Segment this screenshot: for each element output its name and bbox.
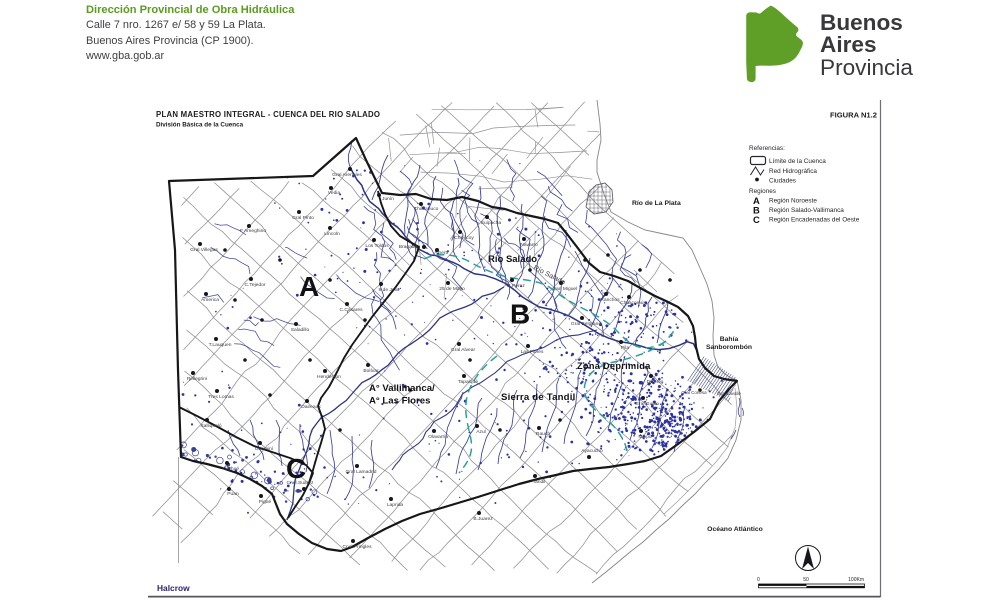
svg-text:B.Juarez: B.Juarez bbox=[473, 516, 493, 522]
svg-text:Guaminí: Guaminí bbox=[255, 446, 274, 452]
svg-text:Gral Conesa: Gral Conesa bbox=[681, 390, 707, 395]
svg-text:Bragado: Bragado bbox=[399, 244, 418, 250]
svg-text:Gral Arenales: Gral Arenales bbox=[332, 172, 362, 178]
svg-text:R.Perez: R.Perez bbox=[507, 283, 525, 289]
svg-text:Chacabuco: Chacabuco bbox=[414, 206, 439, 212]
svg-text:Daireaux: Daireaux bbox=[301, 404, 321, 410]
svg-text:Regiones: Regiones bbox=[749, 188, 776, 195]
svg-text:Junín: Junín bbox=[382, 196, 394, 202]
svg-text:PLAN MAESTRO INTEGRAL - CUENCA: PLAN MAESTRO INTEGRAL - CUENCA DEL RIO S… bbox=[156, 110, 380, 119]
svg-text:C.Casares: C.Casares bbox=[339, 307, 363, 313]
svg-text:America: America bbox=[201, 297, 219, 303]
svg-text:Chivilcoy: Chivilcoy bbox=[454, 235, 474, 241]
svg-text:A: A bbox=[299, 271, 319, 302]
svg-text:9 de Julio: 9 de Julio bbox=[379, 287, 400, 293]
svg-text:A° Las Flores: A° Las Flores bbox=[369, 396, 430, 407]
svg-text:Pigüé: Pigüé bbox=[259, 499, 272, 505]
svg-text:Pila: Pila bbox=[621, 345, 629, 351]
svg-text:Zona Deprimida: Zona Deprimida bbox=[577, 361, 651, 371]
svg-text:Las Flores: Las Flores bbox=[521, 349, 544, 355]
svg-text:FIGURA N1.2: FIGURA N1.2 bbox=[830, 111, 877, 120]
svg-text:Tres Lomas: Tres Lomas bbox=[208, 394, 234, 400]
svg-text:Sanborombón: Sanborombón bbox=[706, 344, 752, 351]
svg-text:Red Hidrográfica: Red Hidrográfica bbox=[769, 168, 817, 175]
svg-text:Halcrow: Halcrow bbox=[157, 583, 190, 593]
svg-text:Tandil: Tandil bbox=[533, 479, 546, 485]
svg-text:Tapalqué: Tapalqué bbox=[458, 379, 478, 385]
svg-text:Sierra de Tandil: Sierra de Tandil bbox=[501, 392, 575, 403]
svg-text:Dolores: Dolores bbox=[647, 379, 664, 385]
svg-text:Carhué: Carhué bbox=[223, 466, 239, 472]
svg-text:Henderson: Henderson bbox=[317, 374, 341, 380]
svg-text:C.Tejedor: C.Tejedor bbox=[245, 282, 266, 288]
svg-text:Saladillo: Saladillo bbox=[291, 327, 310, 333]
svg-text:Océano Atlántico: Océano Atlántico bbox=[707, 526, 763, 533]
svg-text:100Km: 100Km bbox=[848, 577, 864, 583]
svg-text:Puan: Puan bbox=[227, 491, 239, 497]
svg-text:F Ameghino: F Ameghino bbox=[240, 228, 266, 234]
svg-text:Maipú: Maipú bbox=[638, 434, 652, 440]
svg-text:50: 50 bbox=[803, 577, 809, 583]
svg-text:Bahía: Bahía bbox=[720, 336, 739, 343]
svg-text:25 de Mayo: 25 de Mayo bbox=[439, 286, 465, 292]
svg-text:Bolívar: Bolívar bbox=[363, 368, 379, 374]
svg-text:Alberti: Alberti bbox=[434, 250, 448, 256]
svg-text:Pellegrini: Pellegrini bbox=[187, 376, 207, 382]
svg-text:Navarro: Navarro bbox=[520, 242, 538, 248]
svg-text:Salliqueló: Salliqueló bbox=[200, 423, 221, 429]
svg-text:Ranchos: Ranchos bbox=[600, 297, 620, 303]
svg-text:Lincoln: Lincoln bbox=[324, 231, 340, 237]
svg-text:Gral Lamadrid: Gral Lamadrid bbox=[346, 469, 377, 475]
svg-text:Cnel.Pringles: Cnel.Pringles bbox=[342, 544, 372, 550]
svg-text:A° Vallimanca/: A° Vallimanca/ bbox=[369, 383, 435, 394]
svg-text:Gral Pinto: Gral Pinto bbox=[292, 215, 314, 221]
svg-text:Gral Guido: Gral Guido bbox=[635, 401, 659, 407]
svg-text:San Miguel: San Miguel bbox=[553, 286, 577, 292]
svg-text:C: C bbox=[753, 214, 760, 225]
svg-text:Rauch: Rauch bbox=[536, 431, 550, 437]
svg-text:Región Salado-Vallimanca: Región Salado-Vallimanca bbox=[769, 207, 844, 214]
svg-text:División Básica de la Cuenca: División Básica de la Cuenca bbox=[156, 122, 244, 129]
svg-text:Laprida: Laprida bbox=[387, 502, 404, 508]
svg-text:Región Noroeste: Región Noroeste bbox=[769, 198, 817, 205]
svg-text:Región Encadenadas del Oeste: Región Encadenadas del Oeste bbox=[769, 217, 860, 224]
svg-text:Gral Alvear: Gral Alvear bbox=[451, 347, 476, 353]
svg-text:Chascomús: Chascomús bbox=[620, 300, 646, 306]
svg-text:Gral Lavalle: Gral Lavalle bbox=[717, 391, 742, 396]
svg-text:Cnel.Suarez: Cnel.Suarez bbox=[287, 480, 314, 486]
svg-text:Los Toldos: Los Toldos bbox=[365, 243, 389, 249]
svg-text:Vedia: Vedia bbox=[328, 190, 341, 196]
svg-text:Ayacucho: Ayacucho bbox=[581, 448, 603, 454]
svg-text:C: C bbox=[286, 453, 306, 484]
svg-text:Azul: Azul bbox=[476, 429, 486, 435]
svg-text:Río de La Plata: Río de La Plata bbox=[632, 200, 681, 207]
svg-text:Olavarria: Olavarria bbox=[428, 434, 448, 440]
svg-text:B: B bbox=[510, 299, 530, 330]
svg-text:Río Salado: Río Salado bbox=[488, 254, 537, 265]
svg-text:Ciudades: Ciudades bbox=[769, 178, 796, 185]
svg-text:Gral.Villegas: Gral.Villegas bbox=[190, 247, 218, 253]
svg-text:0: 0 bbox=[757, 577, 760, 583]
svg-text:Límite de la Cuenca: Límite de la Cuenca bbox=[769, 158, 826, 165]
svg-text:Gral Belgrano: Gral Belgrano bbox=[571, 321, 601, 327]
svg-text:T.Lauquen: T.Lauquen bbox=[209, 342, 232, 348]
svg-text:Referencias:: Referencias: bbox=[749, 145, 785, 152]
svg-text:Suipacha: Suipacha bbox=[481, 220, 502, 226]
